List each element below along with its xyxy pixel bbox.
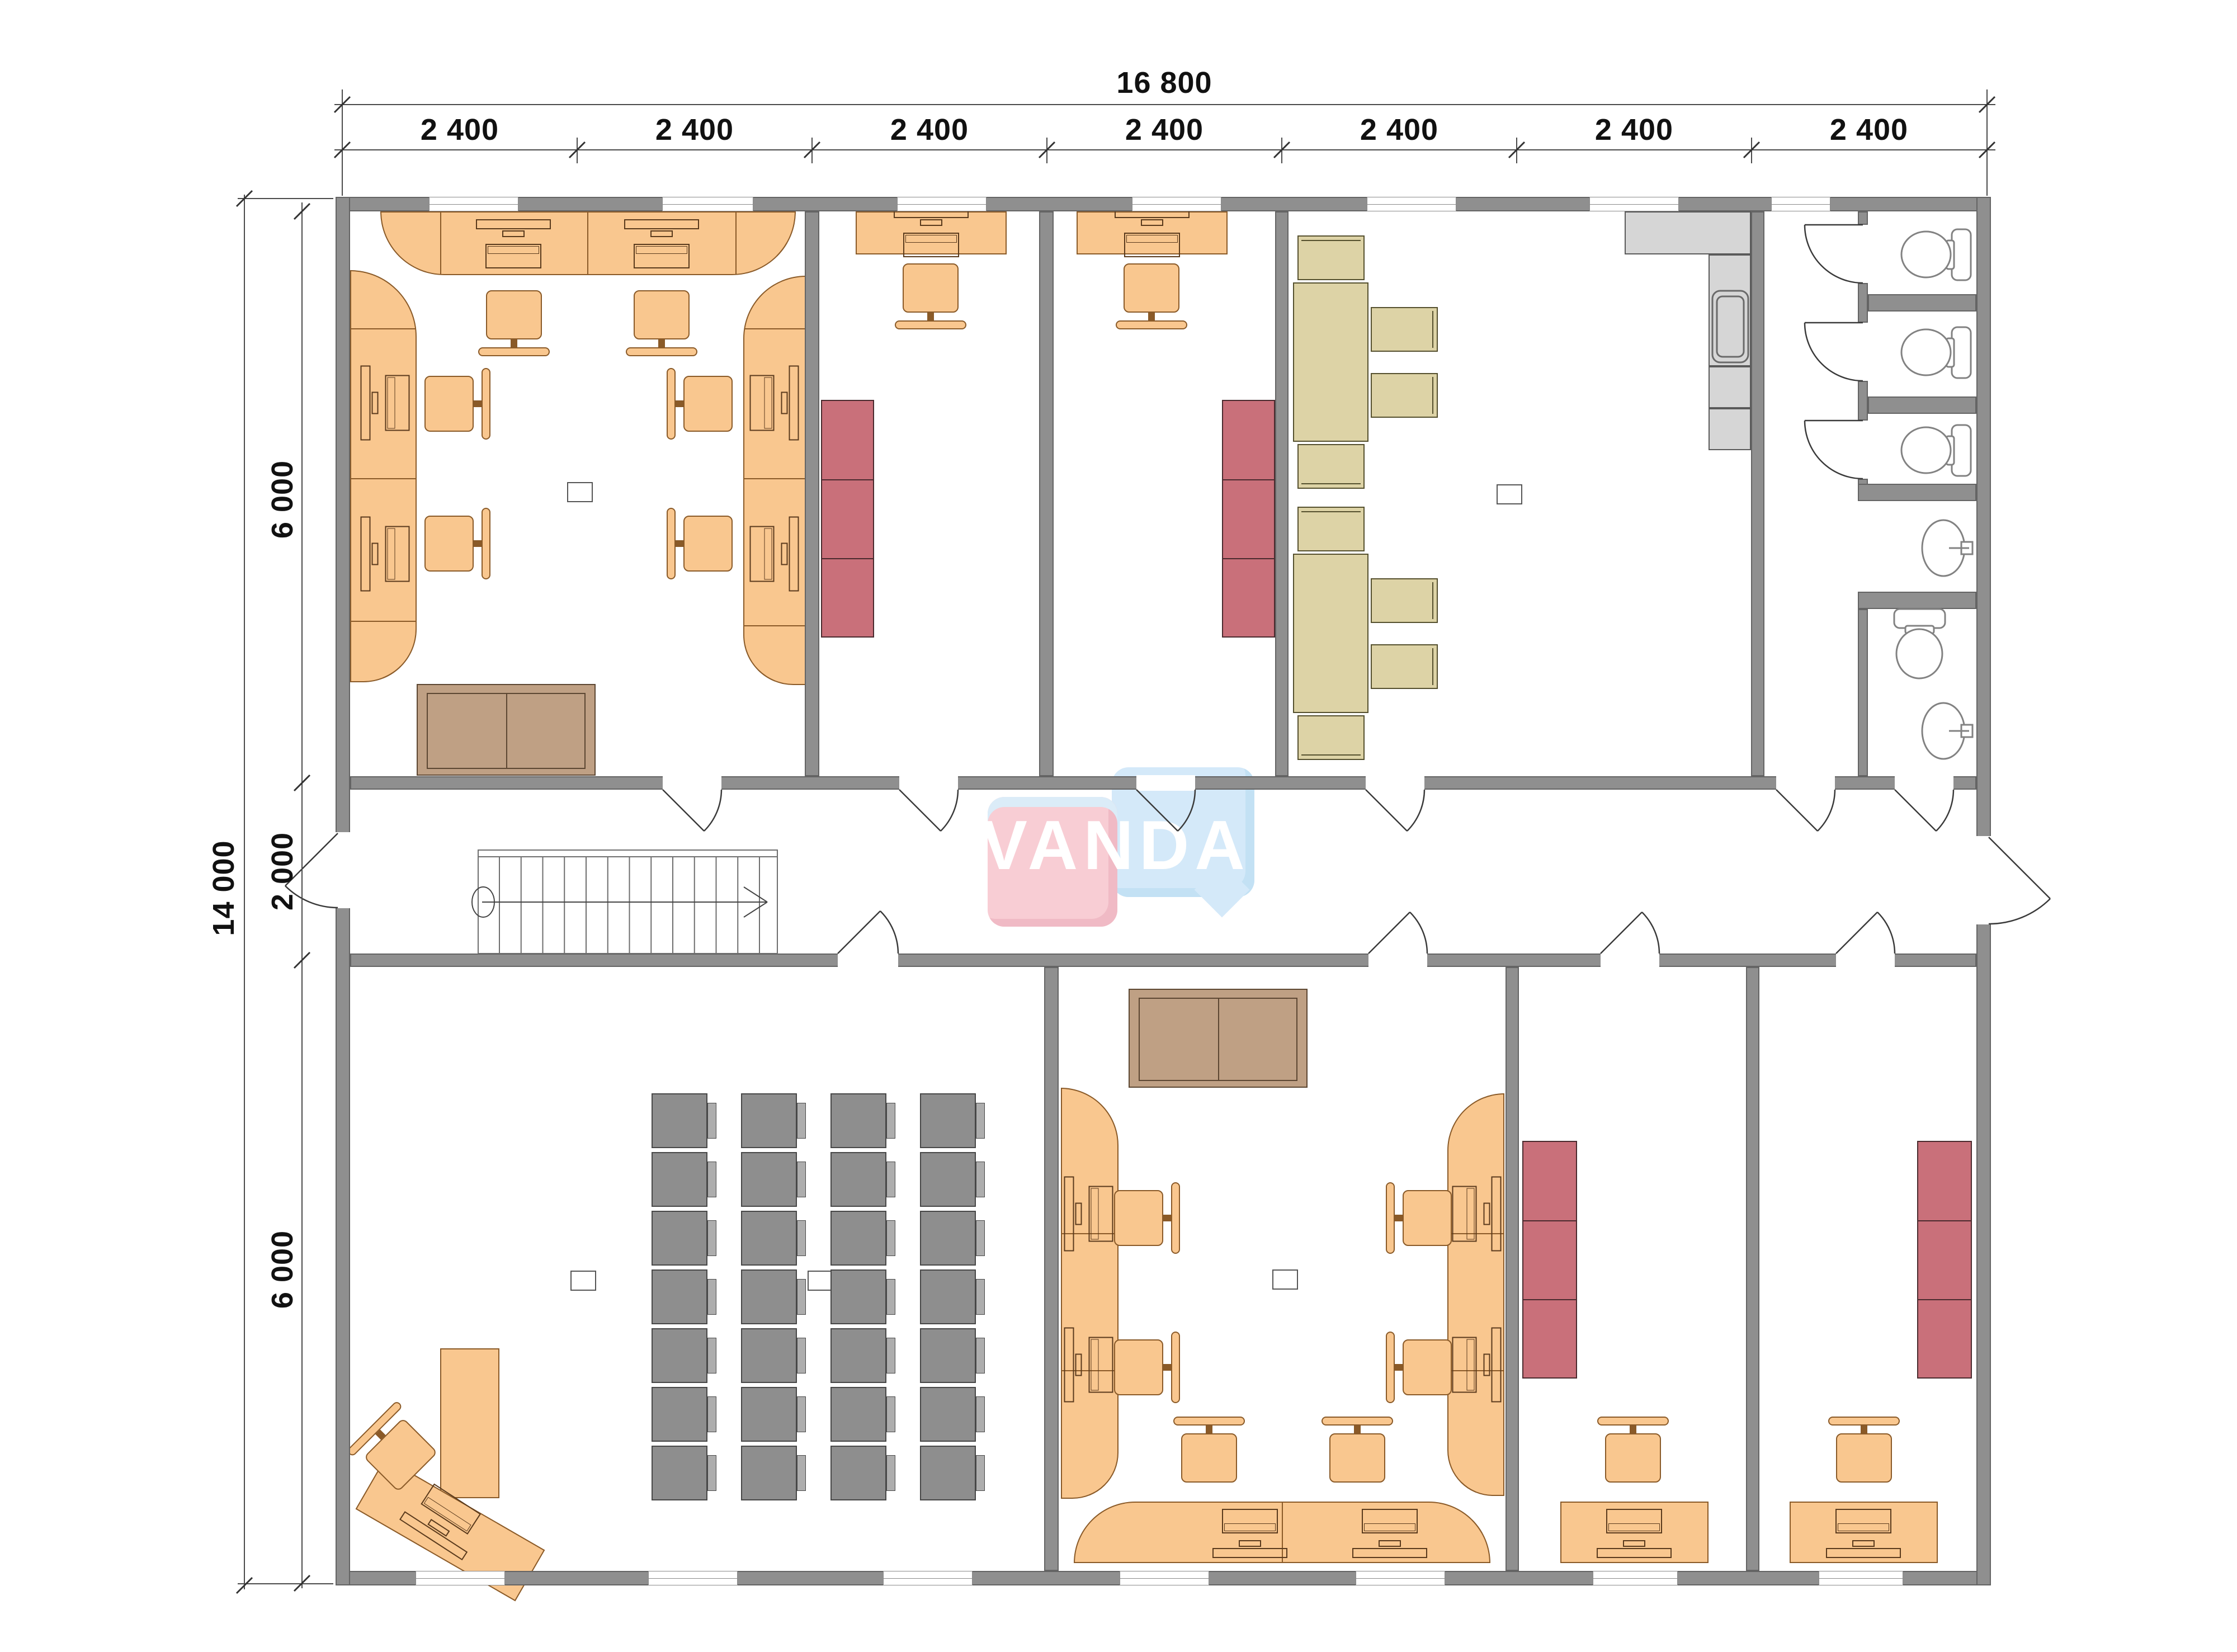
dimension-label: 2 400 [1595,115,1673,145]
door-swing-arc [941,790,958,831]
door-swing-arc [1805,225,1863,283]
dimension-label: 2 400 [890,115,969,145]
dimension-label: 16 800 [1116,68,1212,98]
door-swing-arc [1178,790,1195,831]
dimension-label: 2 000 [267,832,298,910]
door-leaf [899,790,941,831]
door-swing-arc [1410,912,1427,954]
door-swing-arc [1877,912,1895,954]
door-leaf [1136,790,1178,831]
dimension-label: 6 000 [267,1230,298,1309]
dimension-label: 2 400 [655,115,734,145]
stairs-arrow-icon [744,887,767,902]
door-leaf [1989,837,2050,899]
dimension-label: 2 400 [421,115,499,145]
door-swing-arc [1407,790,1424,831]
dimension-label: 2 400 [1125,115,1204,145]
stairs-arrow-icon [744,902,767,917]
door-swing-arc [1642,912,1659,954]
dimension-label: 2 400 [1830,115,1908,145]
drawing-sheet: VANDA 16 8002 4002 4002 40 [0,0,2237,1652]
door-swing-arc [704,790,721,831]
toilet-icon [1901,425,1971,476]
kitchen-sink-icon [1712,291,1748,362]
plan-linework [0,0,2237,1652]
door-leaf [838,911,880,954]
door-leaf [1776,790,1818,831]
sink-icon [1922,703,1972,759]
dimension-label: 6 000 [267,460,298,539]
door-swing-arc [1989,899,2050,924]
door-leaf [1895,790,1936,831]
dimension-label: 2 400 [1360,115,1438,145]
door-swing-arc [1936,790,1953,831]
door-swing-arc [1805,421,1863,479]
toilet-icon [1894,609,1945,678]
door-leaf [663,790,704,831]
dimension-label: 14 000 [209,840,239,936]
toilet-icon [1901,327,1971,378]
sink-icon [1922,520,1972,576]
door-swing-arc [1805,323,1863,381]
door-leaf [1366,790,1407,831]
door-leaf [1836,912,1877,954]
toilet-icon [1901,229,1971,280]
door-swing-arc [1818,790,1835,831]
door-leaf [1368,912,1410,954]
door-swing-arc [880,911,898,954]
door-leaf [1601,912,1642,954]
